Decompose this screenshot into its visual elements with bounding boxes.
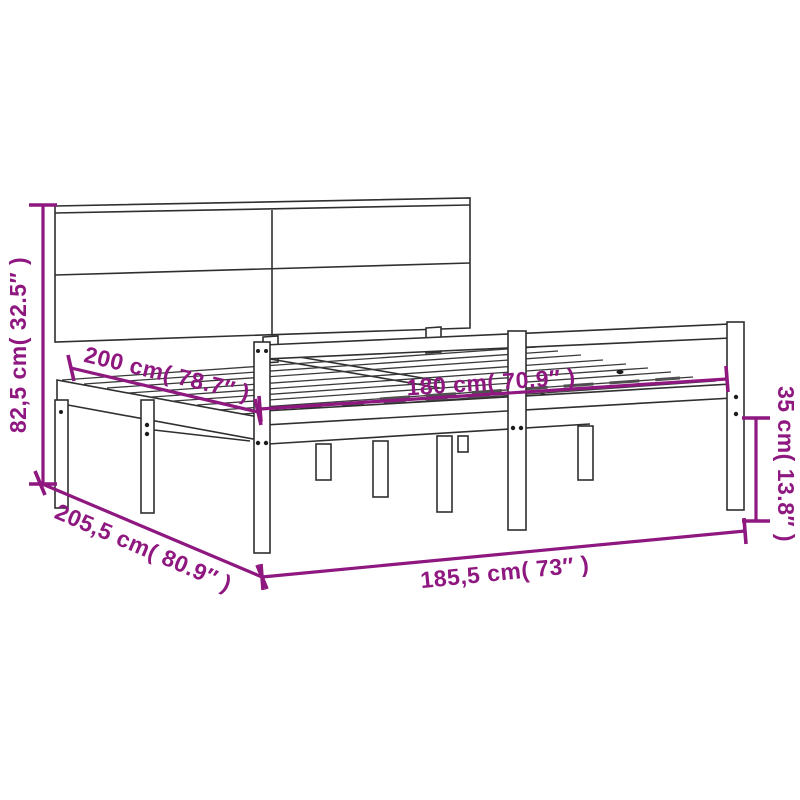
slat-shadow-mark: [617, 370, 624, 374]
bolt-dot: [264, 349, 268, 353]
leg-middle-4: [578, 426, 593, 480]
dimension-tick: [261, 564, 263, 590]
dimension-label: 82,5 cm( 32.5″ ): [5, 257, 31, 433]
dimension-tick: [259, 396, 261, 422]
leg-middle-1: [316, 444, 331, 480]
foot-middle-post: [508, 331, 526, 530]
dimension-tick: [726, 366, 728, 392]
dimension-label: 185,5 cm( 73″ ): [419, 551, 590, 593]
bolt-dot: [145, 432, 149, 436]
bolt-dot: [264, 441, 268, 445]
bed-dimension-diagram: 82,5 cm( 32.5″ ) 200 cm( 78.7″ ) 180 cm(…: [0, 0, 800, 800]
bolt-dot: [145, 423, 149, 427]
bolt-dot: [256, 349, 260, 353]
bolt-dot: [59, 410, 63, 414]
bolt-dot: [734, 395, 738, 399]
bolt-dot: [519, 426, 523, 430]
dimension-label: 35 cm( 13.8″ ): [773, 386, 799, 542]
dimension-headboard-height: 82,5 cm( 32.5″ ): [5, 205, 57, 484]
leg-middle-2: [373, 441, 388, 497]
dimension-platform-height: 35 cm( 13.8″ ): [742, 386, 799, 542]
leg-headboard: [141, 400, 154, 513]
headboard-panel: [55, 198, 470, 342]
leg-middle-3: [437, 436, 452, 512]
dimension-tick: [744, 518, 746, 544]
support-brace-line: [268, 424, 590, 444]
dimension-frame-width: 185,5 cm( 73″ ): [261, 518, 746, 593]
diagram-canvas: 82,5 cm( 32.5″ ) 200 cm( 78.7″ ) 180 cm(…: [0, 0, 800, 800]
bolt-dot: [511, 426, 515, 430]
bolt-dot: [256, 441, 260, 445]
leg-stub: [458, 436, 468, 452]
bolt-dot: [734, 412, 738, 416]
corner-post: [254, 342, 270, 553]
